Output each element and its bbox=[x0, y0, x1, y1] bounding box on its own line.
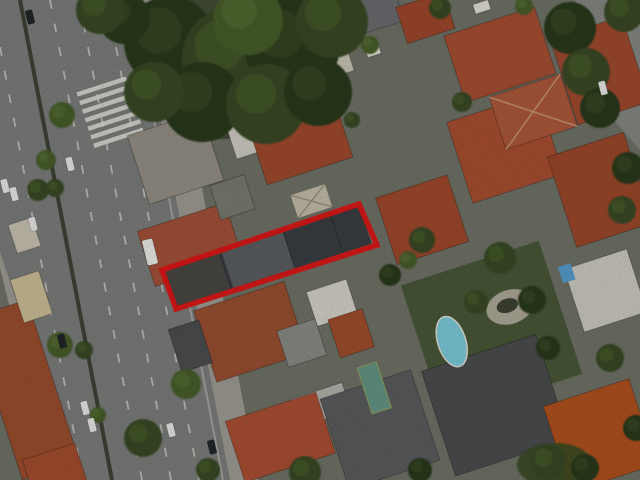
photo-grain-overlay bbox=[0, 0, 640, 480]
aerial-map-view bbox=[0, 0, 640, 480]
satellite-image bbox=[0, 0, 640, 480]
